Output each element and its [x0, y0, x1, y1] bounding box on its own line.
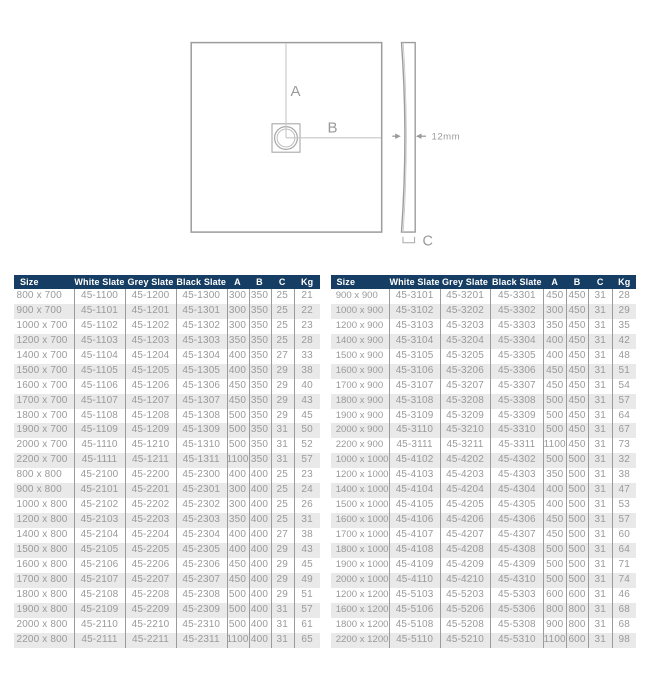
svg-text:12mm: 12mm [432, 132, 461, 143]
svg-text:C: C [423, 234, 433, 250]
svg-text:A: A [291, 83, 301, 100]
svg-text:B: B [328, 120, 338, 137]
